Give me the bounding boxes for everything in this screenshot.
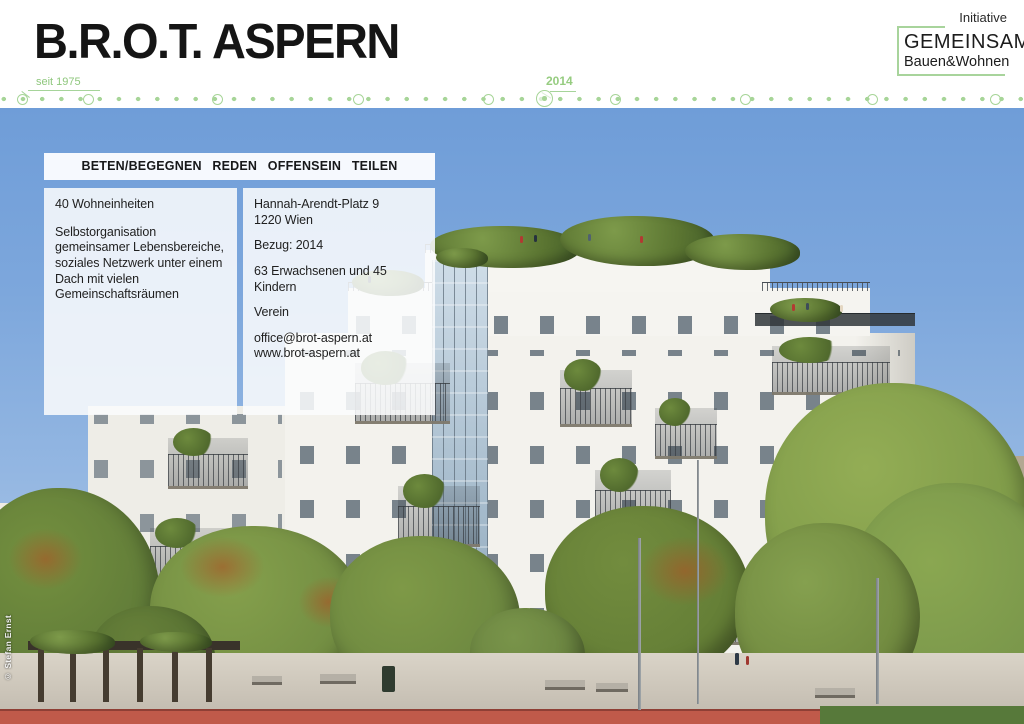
- building-photo: © Stefan Ernst BETEN/BEGEGNEN REDEN OFFE…: [0, 108, 1024, 724]
- grass: [820, 706, 1024, 724]
- email-text: office@brot-aspern.at: [254, 331, 424, 347]
- pergola-post: [38, 648, 44, 702]
- logo-bauen-wohnen: Bauen&Wohnen: [904, 54, 1009, 70]
- balcony: [168, 438, 248, 486]
- photo-credit: © Stefan Ernst: [3, 615, 13, 682]
- bench: [815, 688, 855, 698]
- rooftop-people: [840, 305, 843, 312]
- timeline-ring: [483, 94, 494, 105]
- timeline-ring: [867, 94, 878, 105]
- autumn-foliage: [640, 536, 730, 606]
- distant-person: [746, 656, 749, 665]
- pavement: [0, 653, 1024, 713]
- description-text: Selbstorganisation gemeinsamer Lebensber…: [55, 225, 226, 303]
- trash-bin: [382, 666, 395, 692]
- org-type-text: Verein: [254, 305, 424, 321]
- pergola-post: [103, 648, 109, 702]
- timeline-ring: [353, 94, 364, 105]
- residents-text: 63 Erwachsenen und 45 Kindern: [254, 264, 424, 295]
- bench: [252, 676, 282, 685]
- balcony: [655, 408, 717, 456]
- light-pole: [697, 460, 699, 704]
- rooftop-people: [640, 236, 643, 243]
- pergola-vines: [140, 632, 212, 652]
- balcony: [560, 370, 632, 424]
- pergola-post: [137, 648, 143, 702]
- logo-gemeinsam: GEMEINSAM: [904, 31, 1024, 54]
- bench: [596, 683, 628, 692]
- rooftop-plants: [436, 248, 488, 268]
- roof-railing: [762, 282, 870, 291]
- timeline-ring: [212, 94, 223, 105]
- units-text: 40 Wohneinheiten: [55, 197, 226, 213]
- rooftop-people: [806, 303, 809, 310]
- timeline-ring: [610, 94, 621, 105]
- rooftop-people: [792, 304, 795, 311]
- since-connector-line: [28, 90, 100, 91]
- light-pole: [876, 578, 879, 704]
- rooftop-people: [534, 235, 537, 242]
- pergola-post: [206, 648, 212, 702]
- logo: Initiative GEMEINSAM Bauen&Wohnen: [897, 10, 1009, 76]
- logo-initiative: Initiative: [959, 10, 1007, 25]
- poster-page: B.R.O.T. ASPERN seit 1975 2014 Initiativ…: [0, 0, 1024, 724]
- banner: BETEN/BEGEGNEN REDEN OFFENSEIN TEILEN: [44, 153, 435, 180]
- timeline-ring: [17, 94, 28, 105]
- rooftop-people: [520, 236, 523, 243]
- year-label: 2014: [546, 74, 573, 88]
- rooftop-plants: [770, 298, 842, 322]
- bench: [320, 674, 356, 684]
- rooftop-people: [588, 234, 591, 241]
- balcony: [398, 486, 480, 544]
- occupancy-text: Bezug: 2014: [254, 238, 424, 254]
- timeline-ring: [990, 94, 1001, 105]
- autumn-foliage: [180, 536, 265, 598]
- info-box-right: Hannah-Arendt-Platz 9 1220 Wien Bezug: 2…: [243, 188, 435, 415]
- info-box-left: 40 Wohneinheiten Selbstorganisation geme…: [44, 188, 237, 415]
- pergola-post: [70, 648, 76, 702]
- since-label: seit 1975: [36, 76, 81, 88]
- header: B.R.O.T. ASPERN seit 1975 2014 Initiativ…: [0, 0, 1024, 108]
- website-text: www.brot-aspern.at: [254, 346, 424, 362]
- address-line1: Hannah-Arendt-Platz 9: [254, 197, 424, 213]
- distant-person: [735, 653, 739, 665]
- year-connector-line: [550, 91, 576, 92]
- page-title: B.R.O.T. ASPERN: [34, 12, 399, 69]
- pergola-post: [172, 648, 178, 702]
- timeline-ring: [740, 94, 751, 105]
- timeline-ring: [83, 94, 94, 105]
- light-pole: [638, 538, 641, 710]
- bench: [545, 680, 585, 690]
- address-line2: 1220 Wien: [254, 213, 424, 229]
- timeline-year-marker: [536, 90, 553, 107]
- autumn-foliage: [8, 528, 83, 590]
